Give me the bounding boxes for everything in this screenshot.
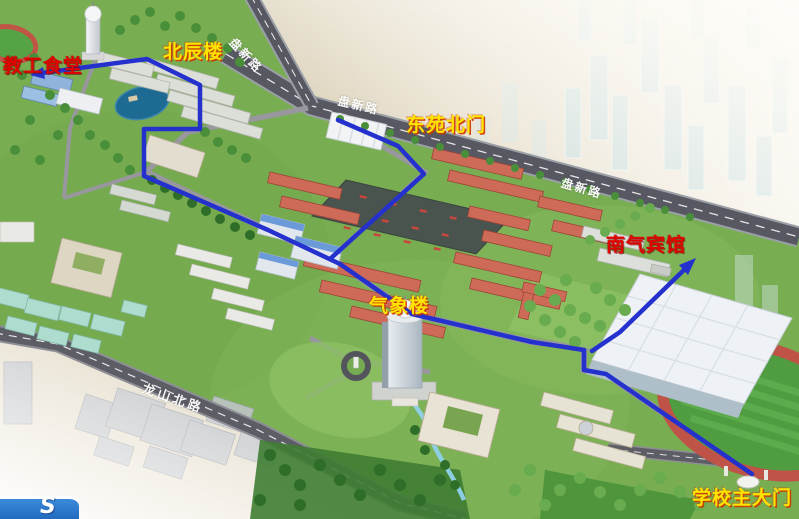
label-meteorology-building: 气象楼 — [369, 297, 429, 317]
monument — [354, 357, 359, 368]
logo-s-glyph: S — [40, 496, 56, 518]
label-faculty-dining-hall: 教工食堂 — [3, 57, 83, 77]
label-nanqi-hotel: 南气宾馆 — [606, 236, 686, 256]
label-school-main-gate: 学校主大门 — [692, 489, 792, 509]
label-east-yard-north-gate: 东苑北门 — [406, 116, 486, 136]
label-beichen-building: 北辰楼 — [163, 43, 223, 63]
corner-logo: S — [0, 496, 79, 519]
roundabout — [344, 354, 368, 378]
campus-map: 教工食堂 北辰楼 东苑北门 气象楼 南气宾馆 学校主大门 盘新路 盘新路 盘新路… — [0, 0, 799, 519]
campus-map-render — [0, 0, 799, 519]
